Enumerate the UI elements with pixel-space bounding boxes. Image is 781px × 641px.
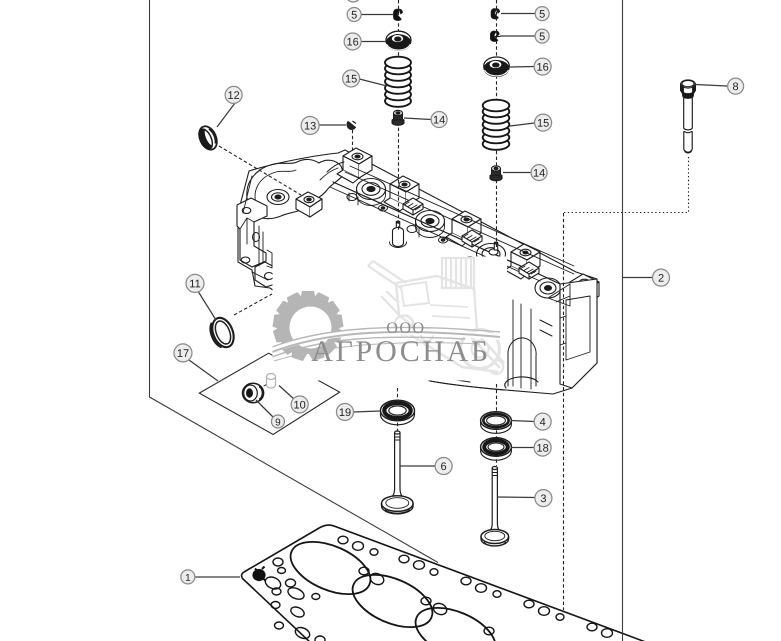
svg-text:16: 16: [537, 62, 549, 74]
svg-text:18: 18: [537, 443, 549, 455]
svg-text:17: 17: [177, 348, 189, 360]
svg-text:АГРОСНАБ: АГРОСНАБ: [311, 335, 490, 368]
svg-text:11: 11: [189, 278, 200, 290]
svg-text:12: 12: [227, 90, 239, 102]
svg-text:15: 15: [537, 118, 549, 130]
svg-text:15: 15: [345, 73, 357, 85]
svg-text:19: 19: [339, 407, 351, 419]
svg-text:13: 13: [304, 120, 316, 132]
svg-text:9: 9: [275, 417, 281, 428]
svg-text:2: 2: [658, 273, 664, 285]
svg-text:4: 4: [540, 417, 546, 429]
svg-text:8: 8: [733, 81, 739, 93]
svg-text:16: 16: [347, 36, 359, 48]
svg-text:5: 5: [539, 9, 545, 21]
svg-text:1: 1: [185, 573, 191, 584]
svg-text:5: 5: [539, 31, 545, 43]
svg-text:6: 6: [441, 461, 447, 473]
svg-text:3: 3: [540, 493, 546, 505]
svg-text:14: 14: [533, 168, 545, 180]
svg-text:5: 5: [351, 9, 357, 21]
svg-text:14: 14: [433, 115, 445, 127]
svg-text:10: 10: [294, 399, 306, 411]
